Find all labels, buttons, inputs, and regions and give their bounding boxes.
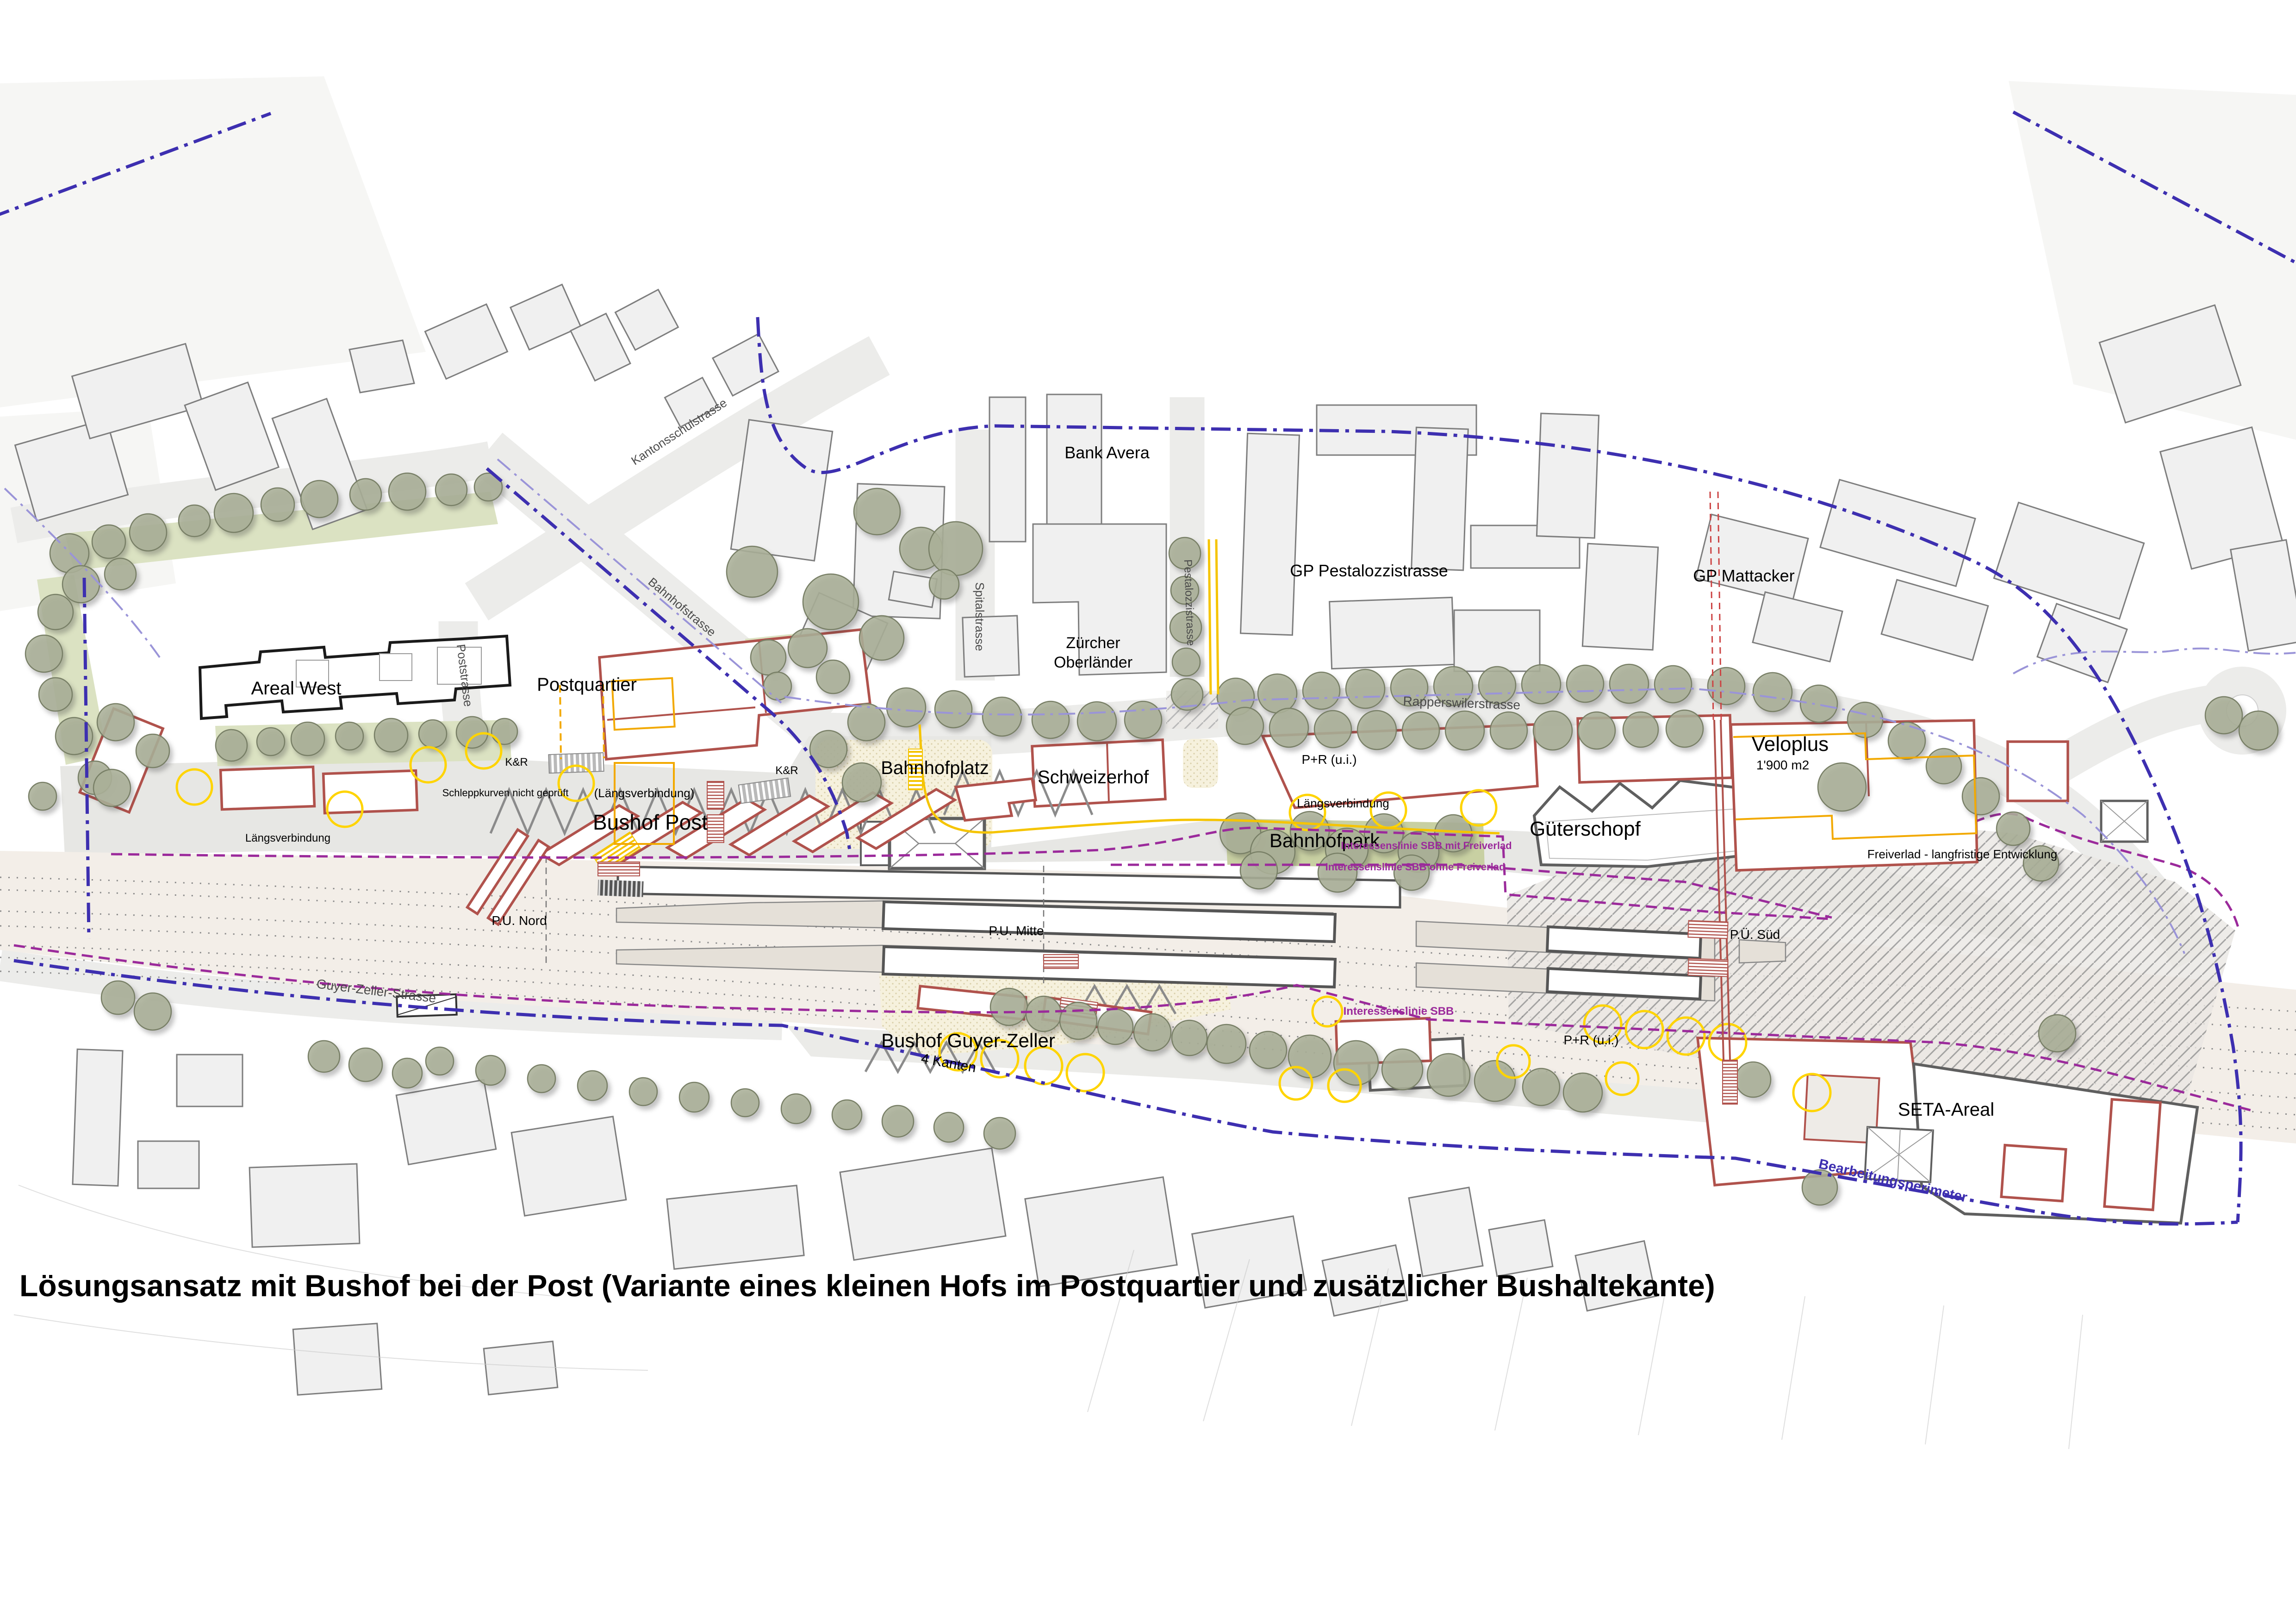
label-veloplus-area: 1'900 m2: [1756, 758, 1809, 772]
label-interessenslinie-ohne: Interessenslinie SBB ohne Freiverlad: [1325, 861, 1506, 873]
label-gueterschopf: Güterschopf: [1530, 818, 1641, 840]
label-interessenslinie-sbb: Interessenslinie SBB: [1344, 1005, 1454, 1018]
label-schleppkurven: Schleppkurven nicht geprüft: [442, 787, 569, 799]
label-laengsverbindung-west: Längsverbindung: [245, 832, 330, 844]
label-bank-avera: Bank Avera: [1064, 443, 1150, 462]
label-areal-west: Areal West: [251, 678, 342, 699]
plan-title: Lösungsansatz mit Bushof bei der Post (V…: [19, 1268, 1715, 1303]
label-kr-left: K&R: [505, 756, 528, 768]
label-freiverlad: Freiverlad - langfristige Entwicklung: [1867, 847, 2057, 861]
label-interessenslinie-mit: Interessenslinie SBB mit Freiverlad: [1341, 840, 1512, 851]
hip-roof-house: [2101, 801, 2147, 842]
label-veloplus: Veloplus: [1752, 733, 1829, 756]
label-spitalstrasse: Spitalstrasse: [973, 582, 987, 651]
label-schweizerhof: Schweizerhof: [1038, 767, 1149, 787]
label-bushof-post: Bushof Post: [593, 810, 708, 834]
label-pr-south: P+R (u.i.): [1563, 1033, 1618, 1047]
kiss-and-ride-left: [548, 753, 604, 773]
bank-avera-building: [989, 397, 1026, 542]
label-bushof-guyer-zeller: Bushof Guyer-Zeller: [881, 1030, 1055, 1051]
label-laengsverbindung-mid: (Längsverbindung): [594, 786, 695, 800]
label-seta-areal: SETA-Areal: [1898, 1099, 1994, 1120]
label-gp-mattacker: GP Mattacker: [1693, 566, 1794, 585]
label-pu-sued: P.Ü. Süd: [1730, 927, 1780, 942]
label-pu-nord: P.U. Nord: [492, 913, 547, 928]
label-zuercher-oberlaender-1: Zürcher: [1066, 634, 1120, 652]
label-zuercher-oberlaender-2: Oberländer: [1054, 654, 1132, 671]
label-pr-north: P+R (u.i.): [1301, 752, 1356, 767]
label-kr-right: K&R: [775, 764, 798, 777]
label-pu-mitte: P.U. Mitte: [989, 924, 1044, 938]
label-bahnhofplatz: Bahnhofplatz: [881, 758, 989, 778]
zuercher-oberlaender-building: [1033, 524, 1166, 675]
label-postquartier: Postquartier: [537, 675, 637, 695]
site-plan: Areal West Postquartier Bahnhofplatz Sch…: [0, 0, 2296, 1624]
label-gp-pestalozzistrasse: GP Pestalozzistrasse: [1290, 561, 1448, 580]
label-laengsverbindung-east: Längsverbindung: [1297, 796, 1389, 810]
